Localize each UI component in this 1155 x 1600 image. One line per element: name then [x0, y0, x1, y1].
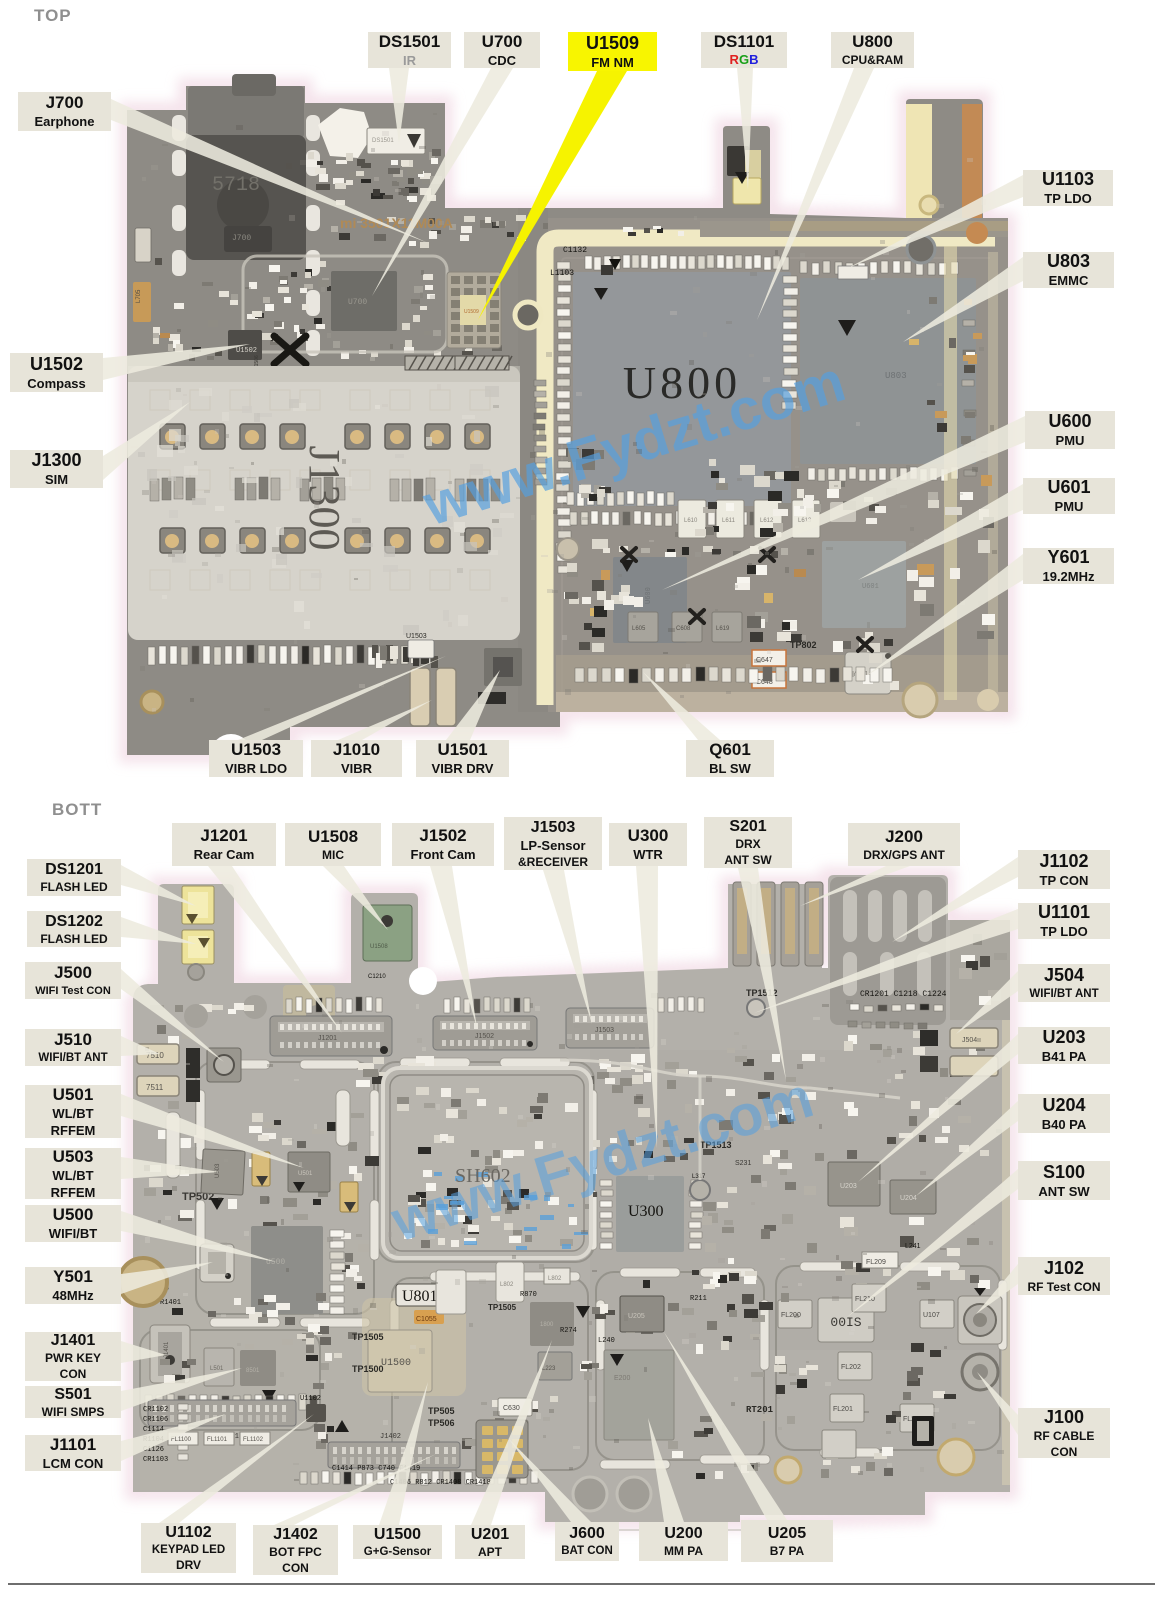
svg-text:J504: J504: [962, 1037, 977, 1044]
svg-text:U501: U501: [298, 1171, 313, 1177]
svg-text:U803: U803: [885, 371, 907, 381]
svg-text:U1503: U1503: [406, 633, 427, 640]
svg-text:1800: 1800: [540, 1322, 554, 1328]
svg-text:U1508: U1508: [370, 944, 388, 950]
svg-text:U503: U503: [215, 1163, 221, 1178]
svg-text:FL1102: FL1102: [243, 1437, 264, 1443]
svg-text:J1503: J1503: [595, 1027, 614, 1034]
svg-text:L223: L223: [542, 1366, 556, 1372]
svg-text:5718: 5718: [212, 174, 260, 197]
svg-text:U1102: U1102: [300, 1395, 321, 1403]
svg-text:CR1102: CR1102: [143, 1406, 168, 1414]
svg-text:U1500: U1500: [381, 1358, 411, 1369]
svg-text:E200: E200: [614, 1375, 630, 1382]
svg-text:R211: R211: [690, 1295, 707, 1303]
svg-text:L705: L705: [136, 289, 142, 303]
svg-text:L612: L612: [760, 518, 774, 524]
svg-text:L802: L802: [500, 1282, 514, 1288]
svg-text:L610: L610: [684, 518, 698, 524]
svg-text:R274: R274: [560, 1327, 577, 1335]
svg-text:RT201: RT201: [746, 1405, 774, 1415]
svg-text:R870: R870: [520, 1291, 537, 1299]
svg-text:CR1106: CR1106: [143, 1416, 168, 1424]
svg-text:TP1500: TP1500: [352, 1364, 384, 1374]
svg-text:C1055: C1055: [416, 1316, 437, 1323]
svg-text:J1401: J1401: [164, 1341, 170, 1358]
svg-text:L240: L240: [598, 1337, 615, 1345]
svg-text:J700: J700: [232, 234, 251, 243]
svg-text:L241: L241: [905, 1243, 921, 1250]
svg-text:U107: U107: [923, 1312, 940, 1319]
svg-text:R1401: R1401: [160, 1299, 181, 1307]
svg-text:U1509: U1509: [464, 309, 479, 315]
svg-text:U1502: U1502: [236, 347, 257, 355]
svg-text:U205: U205: [628, 1313, 645, 1320]
svg-text:TP1505: TP1505: [488, 1303, 517, 1312]
svg-text:DS1501: DS1501: [372, 138, 394, 144]
svg-text:L619: L619: [716, 626, 730, 632]
svg-text:U600: U600: [645, 587, 653, 604]
svg-text:TP1505: TP1505: [352, 1332, 384, 1342]
svg-text:J1201: J1201: [318, 1035, 337, 1042]
svg-text:TP506: TP506: [428, 1418, 455, 1428]
svg-text:L611: L611: [722, 518, 736, 524]
svg-text:U801: U801: [402, 1288, 438, 1305]
svg-text:CR1103: CR1103: [143, 1456, 168, 1464]
svg-text:L605: L605: [632, 626, 646, 632]
svg-text:C1132: C1132: [563, 246, 587, 255]
svg-text:L501: L501: [210, 1366, 224, 1372]
svg-text:FL201: FL201: [833, 1406, 853, 1413]
svg-text:U203: U203: [840, 1183, 857, 1190]
svg-text:7511: 7511: [146, 1083, 164, 1092]
svg-text:8501: 8501: [246, 1368, 260, 1374]
svg-text:J1502: J1502: [475, 1033, 494, 1040]
svg-text:L1103: L1103: [550, 269, 574, 278]
svg-text:C1210: C1210: [368, 974, 386, 980]
svg-text:mi 3501X11M00A: mi 3501X11M00A: [340, 215, 453, 231]
svg-text:C630: C630: [503, 1405, 520, 1412]
svg-text:FL1101: FL1101: [207, 1437, 228, 1443]
svg-text:FL209: FL209: [866, 1259, 886, 1266]
svg-text:S231: S231: [735, 1160, 751, 1167]
svg-text:U500: U500: [266, 1258, 285, 1267]
svg-text:J1300: J1300: [300, 445, 349, 550]
svg-text:CR1201 C1218 C1224: CR1201 C1218 C1224: [860, 990, 947, 999]
svg-text:U300: U300: [628, 1203, 664, 1220]
svg-text:C608: C608: [676, 626, 691, 632]
svg-text:TP505: TP505: [428, 1406, 455, 1416]
svg-text:J1402: J1402: [380, 1433, 401, 1441]
svg-text:U204: U204: [900, 1195, 917, 1202]
svg-text:U700: U700: [348, 298, 367, 307]
svg-text:TP802: TP802: [790, 640, 817, 650]
svg-text:00IS: 00IS: [830, 1315, 861, 1330]
svg-text:L802: L802: [548, 1276, 562, 1282]
svg-text:U601: U601: [862, 583, 879, 591]
svg-text:FL1100: FL1100: [171, 1437, 192, 1443]
svg-text:FL202: FL202: [841, 1364, 861, 1371]
